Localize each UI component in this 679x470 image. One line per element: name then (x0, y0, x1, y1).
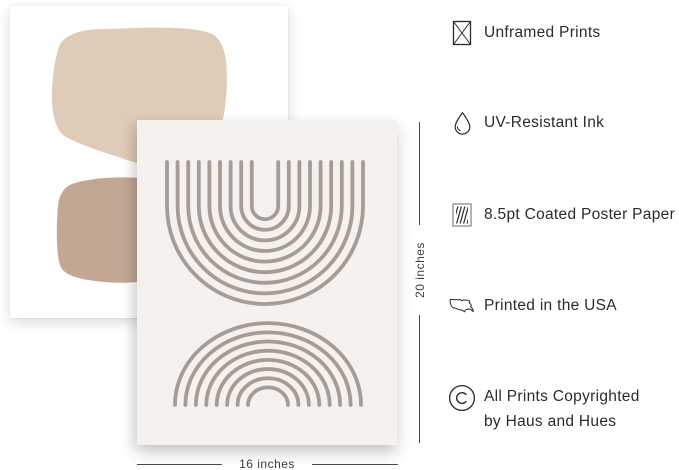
bottom-arch-line (248, 387, 288, 405)
product-infographic: 20 inches 16 inches Unframed Prints UV-R… (0, 0, 679, 470)
feature-label-line-1: All Prints Copyrighted (484, 384, 640, 409)
coated-paper-icon (446, 203, 478, 227)
feature-printed-in-usa: Printed in the USA (446, 293, 617, 319)
height-dimension-line-bottom (419, 315, 420, 443)
no-frame-icon (446, 20, 478, 46)
bottom-arch-line (217, 360, 320, 405)
usa-map-icon (446, 296, 478, 316)
feature-label: Unframed Prints (484, 20, 600, 46)
front-poster-artwork (137, 120, 397, 445)
top-u-line (220, 162, 310, 251)
water-drop-icon (446, 111, 478, 135)
copyright-icon (446, 384, 478, 412)
width-dimension-label: 16 inches (222, 457, 312, 470)
feature-label: 8.5pt Coated Poster Paper (484, 202, 675, 228)
feature-label: All Prints Copyrighted by Haus and Hues (484, 384, 640, 434)
feature-coated-poster-paper: 8.5pt Coated Poster Paper (446, 202, 675, 228)
width-dimension-line-right (312, 464, 398, 465)
feature-copyright: All Prints Copyrighted by Haus and Hues (446, 384, 640, 436)
height-dimension-label: 20 inches (413, 225, 427, 315)
feature-unframed-prints: Unframed Prints (446, 20, 600, 46)
feature-uv-resistant-ink: UV-Resistant Ink (446, 110, 604, 136)
top-u-line (209, 162, 320, 262)
front-poster (137, 120, 397, 445)
feature-label-line-2: by Haus and Hues (484, 409, 640, 434)
top-u-line (252, 162, 278, 219)
feature-label: UV-Resistant Ink (484, 110, 604, 136)
width-dimension-line-left (137, 464, 222, 465)
bottom-arch-line (175, 323, 361, 405)
feature-label: Printed in the USA (484, 293, 617, 319)
height-dimension-line-top (419, 122, 420, 225)
